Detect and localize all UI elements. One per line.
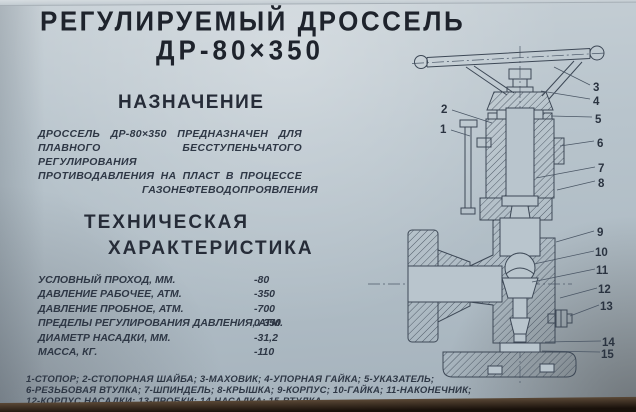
callout-number: 2 (441, 104, 447, 116)
spindle-collar (502, 196, 538, 206)
handwheel-centerline (412, 53, 606, 64)
body-cavity (500, 218, 540, 256)
pointer-rod (465, 127, 471, 208)
handwheel-bar (427, 49, 590, 68)
nozzle-cone (510, 318, 530, 334)
body-neck (500, 343, 540, 352)
callout-number: 15 (601, 349, 614, 361)
handwheel-hub (487, 92, 553, 110)
callout-number: 5 (595, 114, 602, 126)
flange-notch-right (540, 364, 554, 372)
pointer-tab-right (543, 113, 552, 119)
bottom-flange (443, 352, 576, 377)
callout-number: 4 (593, 96, 600, 108)
callout-number: 3 (593, 82, 599, 94)
nozzle-tip (514, 334, 526, 342)
flange-notch-left (488, 366, 502, 374)
handwheel-left-knob (415, 56, 428, 69)
callout-number: 12 (598, 284, 611, 296)
callout-number: 6 (597, 138, 603, 150)
inlet-bore (408, 266, 502, 302)
pointer-tab-left (488, 113, 497, 119)
callout-number: 7 (598, 163, 604, 175)
callout-number: 14 (602, 337, 615, 349)
spindle-taper (510, 206, 530, 218)
threaded-bush (554, 138, 564, 164)
pointer-foot (461, 208, 475, 214)
poster-photo: РЕГУЛИРУЕМЫЙ ДРОССЕЛЬ ДР-80×350 НАЗНАЧЕН… (0, 0, 636, 412)
callout-number: 10 (595, 247, 608, 259)
stopper-cap (460, 120, 477, 127)
callout-number: 13 (600, 301, 613, 313)
lower-stem (513, 298, 527, 318)
valve-section-drawing: 1 2 3 4 5 6 7 8 9 10 11 12 13 14 15 (0, 0, 636, 412)
callout-number: 9 (597, 227, 603, 239)
handwheel-spoke-right (542, 61, 582, 99)
seat-cup (502, 278, 538, 298)
spindle (506, 108, 534, 204)
callout-number: 8 (598, 178, 605, 190)
callout-number: 1 (440, 124, 447, 136)
callout-number: 11 (596, 265, 609, 277)
